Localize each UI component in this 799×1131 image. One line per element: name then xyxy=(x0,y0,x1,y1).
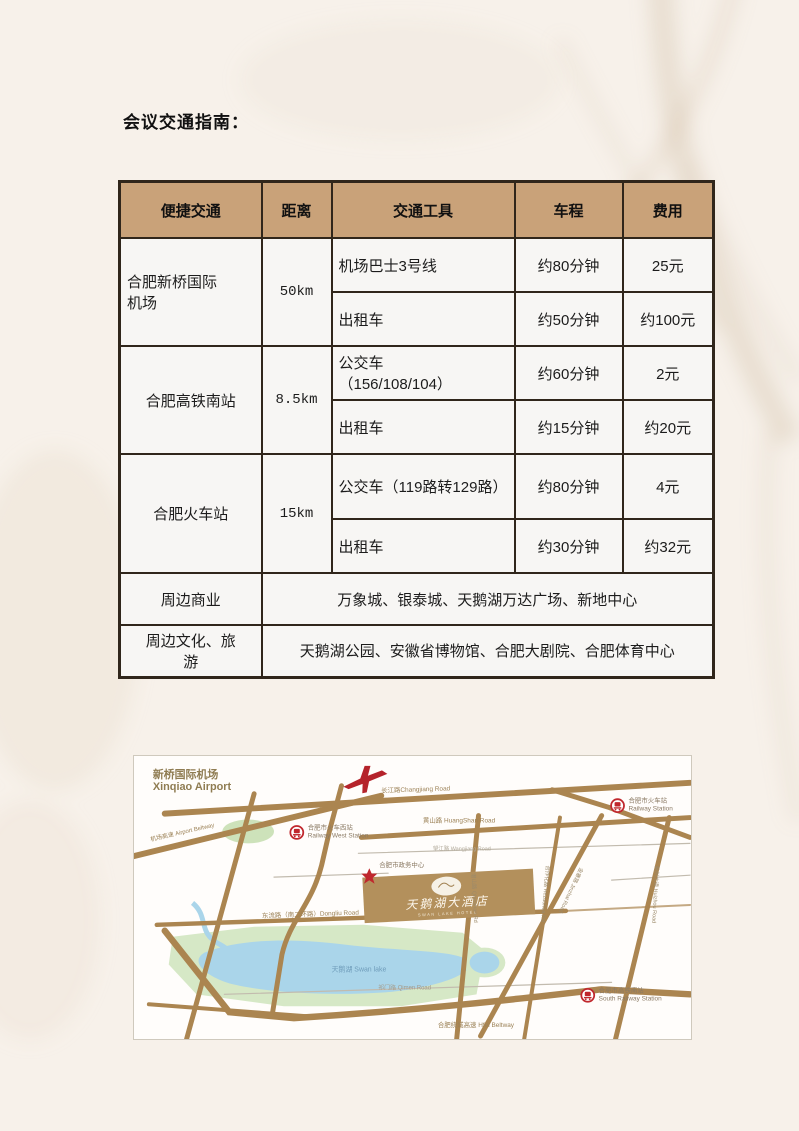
location-south-rail: 合肥高铁南站 xyxy=(120,346,262,454)
vehicle-cell: 公交车 （156/108/104） xyxy=(332,346,515,400)
header-distance: 距离 xyxy=(262,182,332,239)
location-railway: 合肥火车站 xyxy=(120,454,262,573)
value-nearby-business: 万象城、银泰城、天鹅湖万达广场、新地中心 xyxy=(262,573,714,625)
table-row: 周边文化、旅 游 天鹅湖公园、安徽省博物馆、合肥大剧院、合肥体育中心 xyxy=(120,625,714,677)
huizhou-road-label: 徽州大道 Huizhou Road xyxy=(650,865,661,923)
airport-label-cn: 新桥国际机场 xyxy=(153,767,219,781)
table-row: 周边商业 万象城、银泰城、天鹅湖万达广场、新地中心 xyxy=(120,573,714,625)
label-nearby-culture: 周边文化、旅 游 xyxy=(120,625,262,677)
train-station-icon xyxy=(611,799,624,812)
west-station-label-en: Railway West Station xyxy=(308,832,369,839)
vehicle-cell: 出租车 xyxy=(332,400,515,454)
cost-cell: 4元 xyxy=(623,454,714,519)
railway-station-label-en: Railway Station xyxy=(628,806,673,813)
duration-cell: 约80分钟 xyxy=(515,238,623,292)
label-nearby-business: 周边商业 xyxy=(120,573,262,625)
wangjiang-road-label: 望江路 Wangjiang Road xyxy=(433,844,491,852)
railway-station-label-cn: 合肥市火车站 xyxy=(628,796,667,805)
hfei-beltway-label: 合肥绕城高速 Hfei Beltway xyxy=(438,1020,515,1029)
vehicle-cell: 出租车 xyxy=(332,292,515,346)
location-airport: 合肥新桥国际 机场 xyxy=(120,238,262,346)
page-title: 会议交通指南： xyxy=(123,108,249,133)
header-duration: 车程 xyxy=(515,182,623,239)
train-station-icon xyxy=(290,826,303,839)
duration-cell: 约15分钟 xyxy=(515,400,623,454)
cost-cell: 2元 xyxy=(623,346,714,400)
south-station-label-en: South Railway Station xyxy=(599,995,662,1002)
huangshan-road-label: 黄山路 HuangShan Road xyxy=(423,816,496,825)
duration-cell: 约80分钟 xyxy=(515,454,623,519)
cost-cell: 约20元 xyxy=(623,400,714,454)
cost-cell: 约100元 xyxy=(623,292,714,346)
train-station-icon xyxy=(581,989,594,1002)
vehicle-cell: 公交车（119路转129路） xyxy=(332,454,515,519)
value-nearby-culture: 天鹅湖公园、安徽省博物馆、合肥大剧院、合肥体育中心 xyxy=(262,625,714,677)
vehicle-cell: 出租车 xyxy=(332,519,515,573)
gov-center-label: 合肥市政务中心 xyxy=(379,860,425,869)
cost-cell: 约32元 xyxy=(623,519,714,573)
distance-airport: 50km xyxy=(262,238,332,346)
header-cost: 费用 xyxy=(623,182,714,239)
header-convenient-transport: 便捷交通 xyxy=(120,182,262,239)
document-page: { "page": { "title": "会议交通指南：" }, "table… xyxy=(0,0,799,1131)
changjiang-road-label: 长江路Changjiang Road xyxy=(381,783,451,794)
distance-railway: 15km xyxy=(262,454,332,573)
distance-south-rail: 8.5km xyxy=(262,346,332,454)
table-row: 合肥火车站 15km 公交车（119路转129路） 约80分钟 4元 xyxy=(120,454,714,519)
pond-shape xyxy=(470,952,500,974)
airport-label-en: Xinqiao Airport xyxy=(153,781,232,793)
table-row: 合肥高铁南站 8.5km 公交车 （156/108/104） 约60分钟 2元 xyxy=(120,346,714,400)
south-station-label-cn: 合肥市高铁南站 xyxy=(599,985,645,994)
west-station-label-cn: 合肥市火车西站 xyxy=(308,822,354,831)
duration-cell: 约30分钟 xyxy=(515,519,623,573)
qimen-road-label: 祁门路 Qimen Road xyxy=(378,983,431,991)
transport-table: 便捷交通 距离 交通工具 车程 费用 合肥新桥国际 机场 50km 机场巴士3号… xyxy=(118,180,715,679)
duration-cell: 约60分钟 xyxy=(515,346,623,400)
header-vehicle: 交通工具 xyxy=(332,182,515,239)
table-header-row: 便捷交通 距离 交通工具 车程 费用 xyxy=(120,182,714,239)
location-map: 天鹅湖大酒店 SWAN LAKE HOTEL 新桥国际机场 Xinqiao Ai… xyxy=(133,755,692,1040)
duration-cell: 约50分钟 xyxy=(515,292,623,346)
swan-lake-label: 天鹅湖 Swan lake xyxy=(332,964,387,973)
vehicle-cell: 机场巴士3号线 xyxy=(332,238,515,292)
table-row: 合肥新桥国际 机场 50km 机场巴士3号线 约80分钟 25元 xyxy=(120,238,714,292)
hotel-block: 天鹅湖大酒店 SWAN LAKE HOTEL xyxy=(362,869,535,924)
cost-cell: 25元 xyxy=(623,238,714,292)
